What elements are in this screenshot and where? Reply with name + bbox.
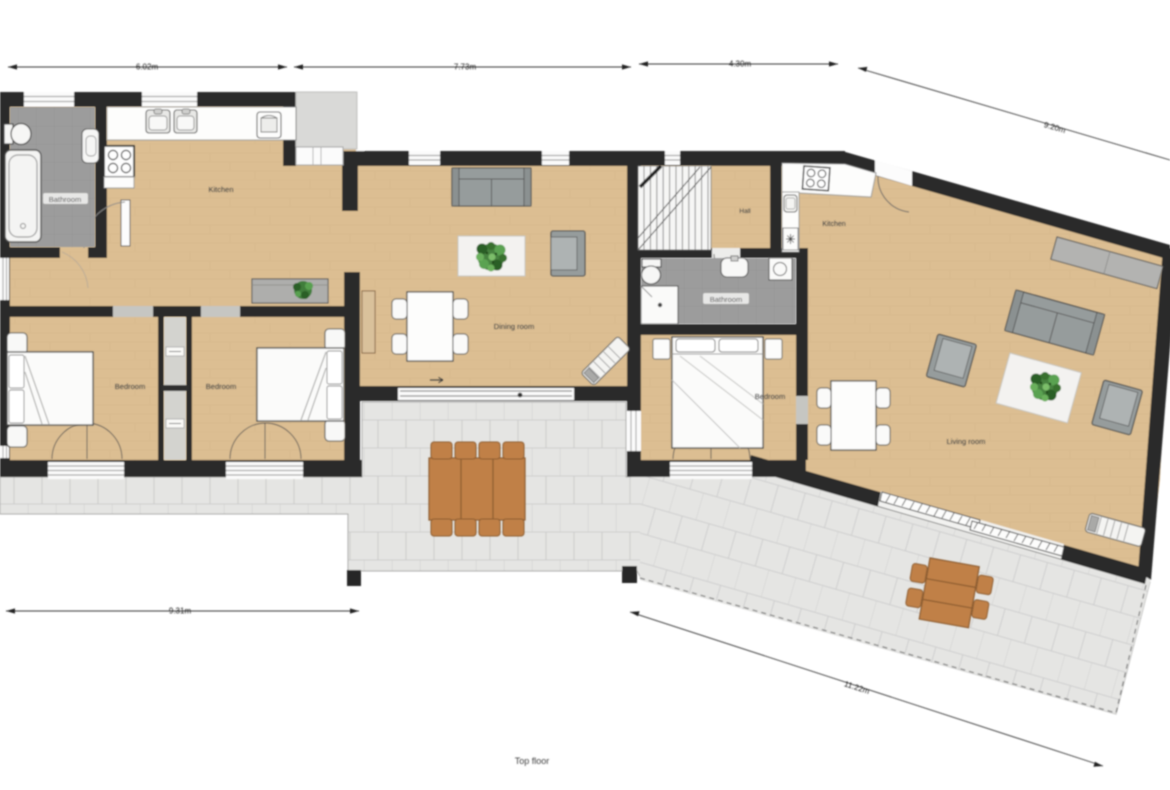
svg-text:6.02m: 6.02m [136,63,159,72]
svg-text:Bedroom: Bedroom [206,382,236,391]
svg-text:4.30m: 4.30m [729,60,752,69]
svg-text:9.31m: 9.31m [169,607,192,616]
svg-text:Bathroom: Bathroom [49,195,82,204]
svg-text:Hall: Hall [739,208,751,215]
svg-text:Bedroom: Bedroom [755,392,785,401]
svg-text:11.22m: 11.22m [843,679,871,696]
svg-text:Bedroom: Bedroom [115,382,145,391]
svg-text:Kitchen: Kitchen [822,221,845,228]
svg-text:Dining room: Dining room [494,322,534,331]
svg-text:Kitchen: Kitchen [208,185,233,194]
svg-text:Top floor: Top floor [515,756,550,766]
svg-text:9.20m: 9.20m [1043,120,1067,135]
svg-text:7.73m: 7.73m [454,63,477,72]
svg-text:Bathroom: Bathroom [710,295,743,304]
svg-text:Living room: Living room [947,437,986,446]
